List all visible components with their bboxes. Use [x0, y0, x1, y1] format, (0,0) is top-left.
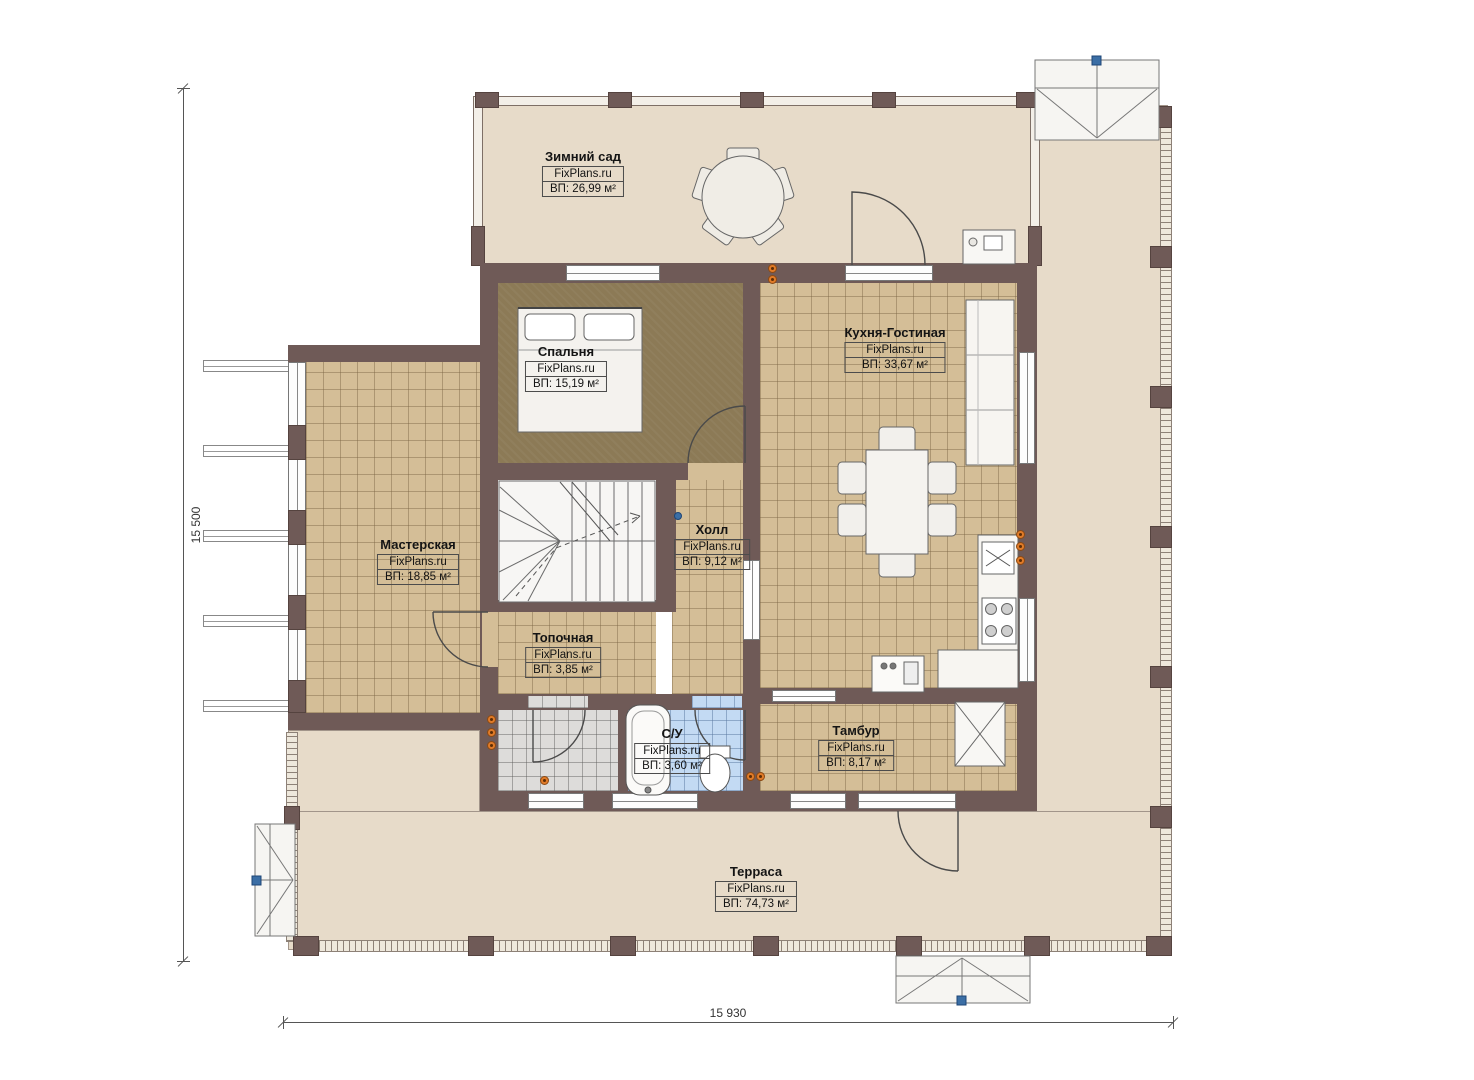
dim-end [283, 1016, 284, 1029]
room-label-workshop: Мастерская FixPlans.ru ВП: 18,85 м² [377, 537, 459, 585]
room-name: Тамбур [818, 723, 894, 738]
radiator-marker [1016, 530, 1025, 539]
room-area: ВП: 3,60 м² [634, 759, 710, 774]
room-name: Терраса [715, 864, 797, 879]
dim-end [1173, 1016, 1174, 1029]
room-area: ВП: 15,19 м² [525, 377, 607, 392]
door-bedroom [688, 406, 745, 463]
dining-set [838, 427, 956, 577]
watermark: FixPlans.ru [377, 554, 459, 570]
wintergarden-counter [963, 230, 1015, 264]
room-area: ВП: 3,85 м² [525, 663, 601, 678]
room-name: Спальня [525, 344, 607, 359]
room-label-kitchen-living: Кухня-Гостиная FixPlans.ru ВП: 33,67 м² [844, 325, 945, 373]
watermark: FixPlans.ru [818, 740, 894, 756]
room-area: ВП: 8,17 м² [818, 756, 894, 771]
dishwasher [872, 656, 924, 692]
watermark: FixPlans.ru [525, 361, 607, 377]
radiator-marker [1016, 542, 1025, 551]
room-name: С/У [634, 726, 710, 741]
room-label-bedroom: Спальня FixPlans.ru ВП: 15,19 м² [525, 344, 607, 392]
door-kitchen-wintergarden [852, 192, 925, 265]
room-label-terrace: Терраса FixPlans.ru ВП: 74,73 м² [715, 864, 797, 912]
door-workshop [433, 612, 488, 667]
steps-left [252, 824, 295, 936]
room-label-hall: Холл FixPlans.ru ВП: 9,12 м² [674, 522, 750, 570]
steps-top-right [1035, 56, 1159, 140]
dimension-label-bottom: 15 930 [710, 1006, 747, 1020]
room-name: Холл [674, 522, 750, 537]
room-name: Кухня-Гостиная [844, 325, 945, 340]
radiator-marker [1016, 556, 1025, 565]
watermark: FixPlans.ru [715, 881, 797, 897]
room-area: ВП: 74,73 м² [715, 897, 797, 912]
radiator-marker [487, 715, 496, 724]
room-label-bathroom: С/У FixPlans.ru ВП: 3,60 м² [634, 726, 710, 774]
room-name: Мастерская [377, 537, 459, 552]
room-area: ВП: 9,12 м² [674, 555, 750, 570]
radiator-marker [768, 275, 777, 284]
sofa [966, 300, 1014, 465]
door-vestibule-exit [898, 811, 958, 871]
staircase [499, 481, 655, 602]
level-marker [674, 512, 682, 520]
watermark: FixPlans.ru [525, 647, 601, 663]
floor-plan: Зимний сад FixPlans.ru ВП: 26,99 м² Спал… [0, 0, 1474, 1080]
radiator-marker [487, 728, 496, 737]
room-area: ВП: 18,85 м² [377, 570, 459, 585]
room-label-boiler: Топочная FixPlans.ru ВП: 3,85 м² [525, 630, 601, 678]
radiator-marker [756, 772, 765, 781]
room-name: Топочная [525, 630, 601, 645]
wardrobe [955, 702, 1005, 766]
watermark: FixPlans.ru [634, 743, 710, 759]
dim-end [177, 88, 190, 89]
dimension-line-bottom [283, 1022, 1173, 1023]
dim-end [177, 961, 190, 962]
steps-bottom [896, 956, 1030, 1005]
room-area: ВП: 26,99 м² [542, 182, 624, 197]
door-entry-gray [533, 710, 585, 762]
radiator-marker [768, 264, 777, 273]
room-name: Зимний сад [542, 149, 624, 164]
watermark: FixPlans.ru [844, 342, 945, 358]
room-area: ВП: 33,67 м² [844, 358, 945, 373]
radiator-marker [487, 741, 496, 750]
dimension-label-left: 15 500 [189, 507, 203, 544]
round-table-set [691, 148, 794, 246]
watermark: FixPlans.ru [674, 539, 750, 555]
room-label-winter-garden: Зимний сад FixPlans.ru ВП: 26,99 м² [542, 149, 624, 197]
radiator-marker [746, 772, 755, 781]
dimension-line-left [183, 88, 184, 962]
room-label-vestibule: Тамбур FixPlans.ru ВП: 8,17 м² [818, 723, 894, 771]
radiator-marker [540, 776, 549, 785]
watermark: FixPlans.ru [542, 166, 624, 182]
kitchen-counter [938, 535, 1018, 688]
